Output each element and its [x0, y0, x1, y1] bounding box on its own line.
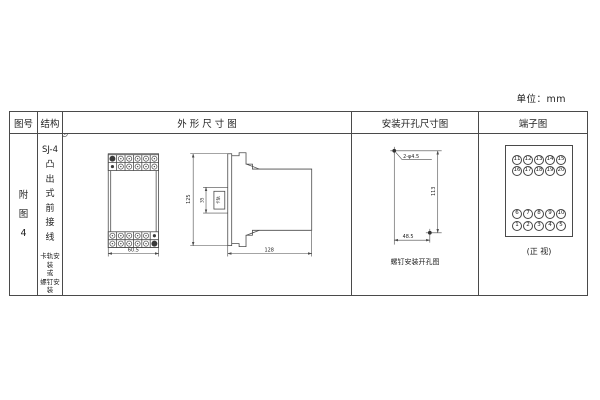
terminal-outline-box: 11 12 13 14 15 16 17 18 19 20 6	[505, 145, 573, 237]
terminal-circle: 1	[512, 221, 522, 231]
unit-label: 单位：mm	[516, 91, 566, 105]
rail-label: 卡轨	[215, 196, 220, 204]
terminal-circle: 13	[534, 155, 544, 165]
side-height-dim: 125	[186, 194, 192, 203]
terminal-circle: 11	[512, 155, 522, 165]
cell-outline-drawing: 60.5	[63, 134, 352, 295]
mounting-hole-drawing: 2-φ4.5 113 48.5	[352, 134, 479, 295]
terminal-row: 6 7 8 9 10	[506, 209, 572, 219]
mounting-note: 卡轨安装 或 螺钉安装	[38, 252, 62, 295]
terminal-circle: 12	[523, 155, 533, 165]
terminal-circle: 7	[523, 209, 533, 219]
terminal-row: 1 2 3 4 5	[506, 221, 572, 231]
terminal-circle: 18	[534, 166, 544, 176]
header-outline: 外 形 尺 寸 图	[63, 112, 352, 133]
header-mounting: 安装开孔尺寸图	[352, 112, 479, 133]
rail-dim: 35	[200, 197, 206, 203]
terminal-circle: 4	[545, 221, 555, 231]
figure-char: 4	[20, 224, 26, 243]
structure-char: 凸	[45, 158, 54, 173]
mounting-note-line: 螺钉安装	[38, 278, 62, 295]
hole-spec-label: 2-φ4.5	[403, 154, 419, 160]
side-depth-dim: 128	[265, 248, 274, 254]
figure-char: 图	[19, 205, 29, 224]
table-header-row: 图号 结构 外 形 尺 寸 图 安装开孔尺寸图 端子图	[10, 112, 587, 134]
mounting-caption: 螺钉安装开孔图	[352, 257, 478, 267]
front-width-dim: 60.5	[128, 248, 139, 254]
figure-number: 附 图 4	[10, 134, 37, 295]
terminal-circle: 3	[534, 221, 544, 231]
terminal-circle: 10	[556, 209, 566, 219]
terminal-circle: 16	[512, 166, 522, 176]
cell-mounting-drawing: 2-φ4.5 113 48.5 螺钉安装开孔图	[352, 134, 479, 295]
structure-char: 出	[45, 173, 54, 188]
model-label: SJ-4	[42, 145, 58, 155]
terminal-circle: 5	[556, 221, 566, 231]
terminal-row: 16 17 18 19 20	[506, 166, 572, 176]
structure-text: SJ-4 凸 出 式 前 接 线 卡轨安装 或 螺钉安装	[38, 134, 62, 295]
terminal-circle: 17	[523, 166, 533, 176]
cell-terminal-diagram: 11 12 13 14 15 16 17 18 19 20 6	[479, 134, 587, 295]
header-figure-no: 图号	[10, 112, 38, 133]
terminal-caption: (正 视)	[505, 246, 573, 257]
terminal-circle: 15	[556, 155, 566, 165]
cell-figure-no: 附 图 4	[10, 134, 38, 295]
table-body-row: 附 图 4 SJ-4 凸 出 式 前 接 线 卡轨安装 或	[10, 134, 587, 295]
terminal-circle: 19	[545, 166, 555, 176]
structure-char: 前	[45, 202, 54, 217]
terminal-row: 11 12 13 14 15	[506, 155, 572, 165]
mounting-note-line: 卡轨安装	[38, 252, 62, 269]
terminal-circle: 8	[534, 209, 544, 219]
terminal-circle: 9	[545, 209, 555, 219]
figure-char: 附	[19, 186, 29, 205]
structure-char: 接	[45, 216, 54, 231]
mounting-horizontal-dim: 48.5	[403, 234, 414, 240]
terminal-circle: 6	[512, 209, 522, 219]
structure-char: 线	[45, 231, 54, 246]
structure-char: 式	[45, 187, 54, 202]
header-terminal: 端子图	[479, 112, 587, 133]
mounting-vertical-dim: 113	[431, 187, 437, 196]
mounting-note-line: 或	[38, 269, 62, 278]
outline-dimension-drawing: 60.5	[63, 134, 352, 295]
front-terminal-screws	[63, 134, 157, 247]
spec-table: 图号 结构 外 形 尺 寸 图 安装开孔尺寸图 端子图 附 图 4 SJ-4 凸	[9, 111, 588, 296]
terminal-circle: 2	[523, 221, 533, 231]
terminal-circle: 20	[556, 166, 566, 176]
terminal-circle: 14	[545, 155, 555, 165]
cell-structure: SJ-4 凸 出 式 前 接 线 卡轨安装 或 螺钉安装	[38, 134, 63, 295]
datasheet-page: 单位：mm 图号 结构 外 形 尺 寸 图 安装开孔尺寸图 端子图 附 图 4 …	[0, 0, 600, 400]
header-structure: 结构	[38, 112, 63, 133]
